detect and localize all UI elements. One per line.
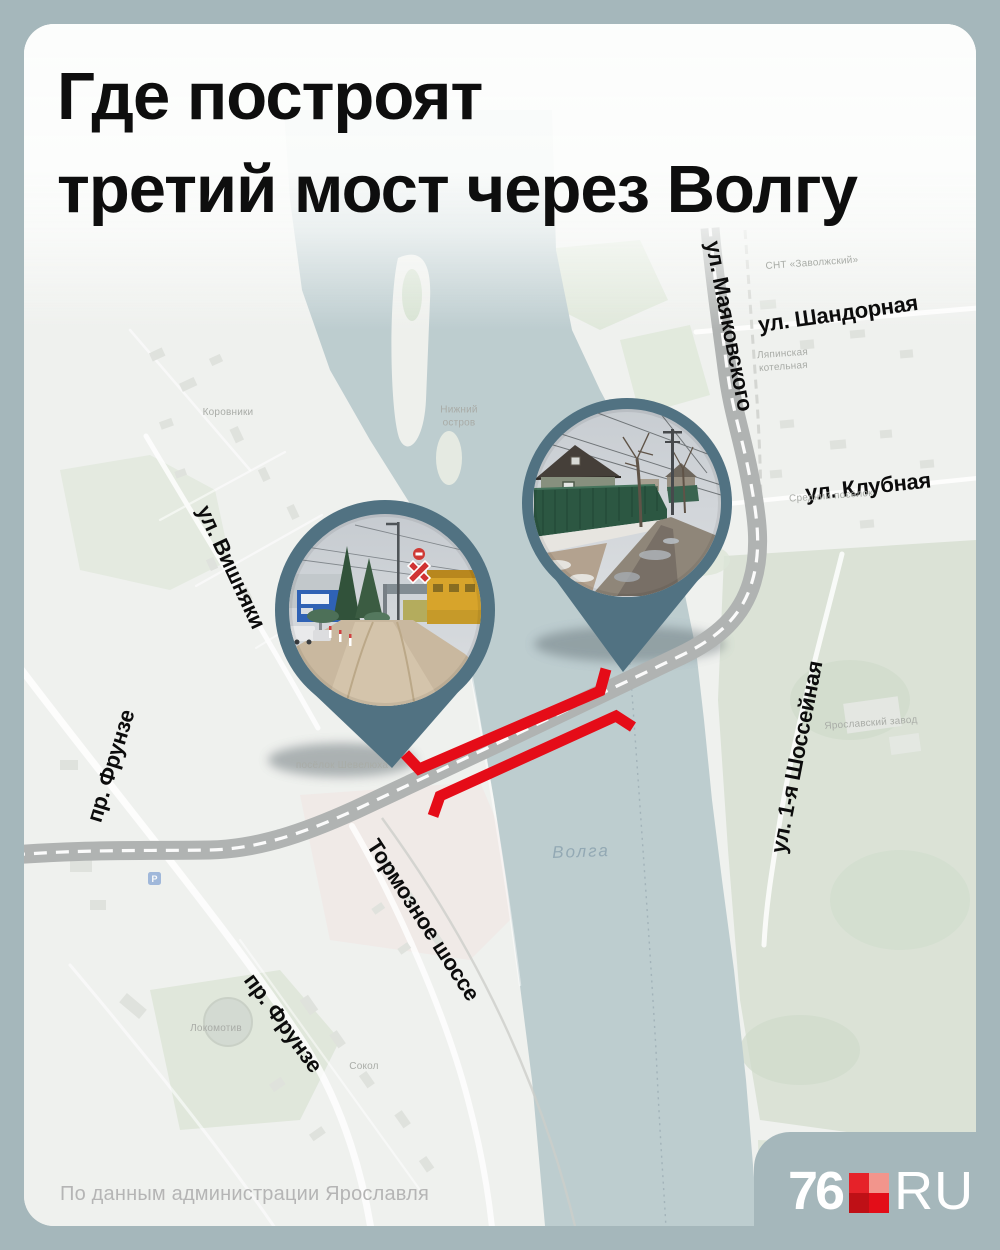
pin-right-photo bbox=[533, 409, 721, 597]
map-canvas: ул. Маяковского ул. Шандорная ул. Клубна… bbox=[24, 24, 976, 1226]
logo-number: 76 bbox=[788, 1160, 842, 1222]
logo-square-tl bbox=[849, 1173, 869, 1193]
logo-square-br bbox=[869, 1193, 889, 1213]
map-label-lokomotiv: Локомотив bbox=[190, 1023, 242, 1036]
infographic-frame: ул. Маяковского ул. Шандорная ул. Клубна… bbox=[0, 0, 1000, 1250]
parking-icon: P bbox=[148, 872, 161, 885]
map-label-shevelyukha: посёлок Шевелюха bbox=[296, 760, 388, 773]
logo-domain: RU bbox=[894, 1160, 974, 1222]
map-label-sokol: Сокол bbox=[349, 1061, 378, 1074]
title-line-2: третий мост через Волгу bbox=[57, 143, 857, 236]
logo-plate: 76 RU bbox=[754, 1132, 1000, 1250]
source-note: По данным администрации Ярославля bbox=[60, 1183, 429, 1206]
title-line-1: Где построят bbox=[57, 50, 857, 143]
page-title: Где построят третий мост через Волгу bbox=[57, 50, 857, 236]
logo-red-square-icon bbox=[849, 1173, 889, 1213]
logo-square-tr bbox=[869, 1173, 889, 1193]
map-label-nizhniy-ostrov: Нижний остров bbox=[440, 405, 477, 430]
logo-square-bl bbox=[849, 1193, 869, 1213]
map-label-lyapinskaya: Ляпинская котельная bbox=[757, 347, 809, 375]
river-label: Волга bbox=[552, 841, 610, 863]
map-label-korovniki: Коровники bbox=[203, 407, 254, 420]
